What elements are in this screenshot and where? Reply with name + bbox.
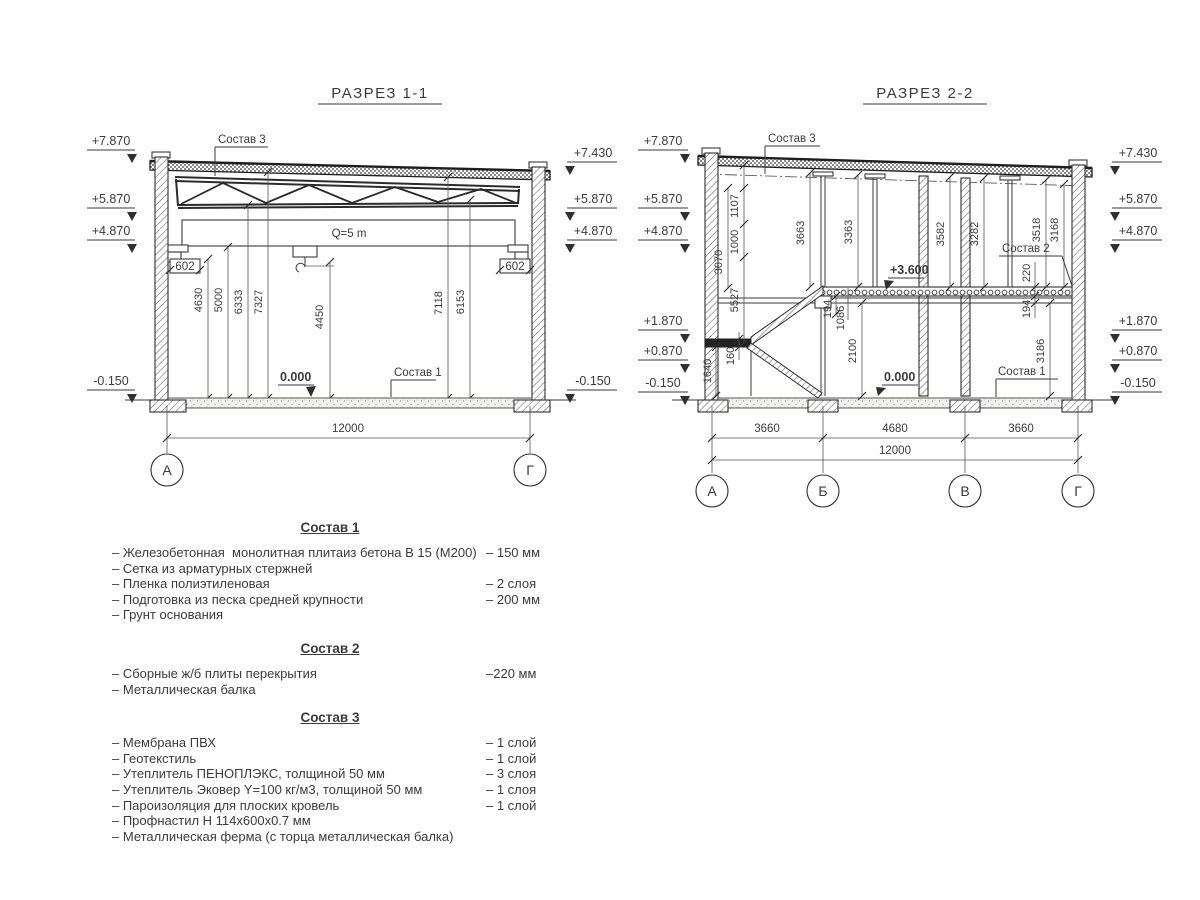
legend-item-value xyxy=(486,829,548,845)
level-mark: +4.870 xyxy=(1110,224,1162,253)
level-mark: -0.150 xyxy=(638,376,690,405)
svg-text:+3.600: +3.600 xyxy=(890,263,929,277)
section-1-title: РАЗРЕЗ 1-1 xyxy=(331,85,429,102)
svg-text:+7.870: +7.870 xyxy=(92,134,131,148)
level-0000-mark: 0.000 xyxy=(876,370,918,396)
svg-text:Б: Б xyxy=(818,483,827,499)
dim-3518: 3518 xyxy=(1031,176,1050,291)
level-mark: +7.870 xyxy=(87,134,137,163)
legend-row: – Пленка полиэтиленовая– 2 слоя xyxy=(112,576,548,592)
legend-item-label: – Сборные ж/б плиты перекрытия xyxy=(112,666,317,682)
dim-text: 602 xyxy=(505,261,524,273)
dim-602-right: 602 xyxy=(496,259,534,274)
sostav-2-title: Состав 2 xyxy=(112,641,548,656)
legend-item-label: – Железобетонная монолитная плитаиз бето… xyxy=(112,545,477,561)
dim-5000: 5000 xyxy=(213,243,232,402)
legend-row: – Сетка из арматурных стержней xyxy=(112,561,548,577)
legend-row: – Металлическая балка xyxy=(112,682,548,698)
svg-text:2100: 2100 xyxy=(847,339,859,363)
svg-text:+5.870: +5.870 xyxy=(1119,192,1158,206)
level-mark: +0.870 xyxy=(638,344,690,373)
crane-capacity-label: Q=5 m xyxy=(332,228,367,240)
svg-text:В: В xyxy=(960,483,969,499)
legend-item-value: – 1 слой xyxy=(486,735,548,751)
svg-text:-0.150: -0.150 xyxy=(1120,376,1155,390)
dim-text: 6153 xyxy=(455,290,467,314)
legend-row: – Утеплитель Эковер Y=100 кг/м3, толщино… xyxy=(112,782,548,798)
level-mark: +5.870 xyxy=(87,192,137,221)
section-2-2: РАЗРЕЗ 2-2 xyxy=(638,85,1162,507)
svg-text:3660: 3660 xyxy=(1008,423,1034,435)
dim-4450: 4450 xyxy=(314,258,334,402)
svg-text:+4.870: +4.870 xyxy=(1119,224,1158,238)
legend-item-label: – Пароизоляция для плоских кровель xyxy=(112,798,339,814)
legend-row: – Подготовка из песка средней крупности–… xyxy=(112,592,548,608)
legend-item-label: – Профнастил Н 114х600х0.7 мм xyxy=(112,813,311,829)
svg-text:12000: 12000 xyxy=(879,445,911,457)
level-mark: +5.870 xyxy=(1110,192,1162,221)
level-mark: -0.150 xyxy=(1110,376,1162,405)
legend-row: – Мембрана ПВХ– 1 слой xyxy=(112,735,548,751)
svg-text:3282: 3282 xyxy=(969,222,981,246)
svg-text:0.000: 0.000 xyxy=(884,370,915,384)
legend-item-label: – Грунт основания xyxy=(112,607,223,623)
dim-4630: 4630 xyxy=(193,255,212,402)
svg-text:Состав 1: Состав 1 xyxy=(998,366,1046,378)
level-mark: +7.870 xyxy=(638,134,690,163)
axis-bubble-a: А xyxy=(696,475,728,507)
svg-text:4680: 4680 xyxy=(882,423,908,435)
dim-3363: 3363 xyxy=(843,171,862,291)
level-mark: +1.870 xyxy=(1110,314,1162,343)
sostav-2-block: Состав 2 – Сборные ж/б плиты перекрытия–… xyxy=(112,641,548,697)
dim-text: 6333 xyxy=(233,290,245,314)
sostav2-callout: Состав 2 xyxy=(999,243,1072,286)
svg-text:-0.150: -0.150 xyxy=(575,374,610,388)
legend-row: – Грунт основания xyxy=(112,607,548,623)
legend-item-label: – Утеплитель Эковер Y=100 кг/м3, толщино… xyxy=(112,782,422,798)
svg-text:+4.870: +4.870 xyxy=(644,224,683,238)
dim-7327: 7327 xyxy=(253,168,272,402)
legend-item-value xyxy=(486,607,548,623)
dim-3663: 3663 xyxy=(795,169,814,291)
svg-text:Состав 2: Состав 2 xyxy=(1002,243,1050,255)
svg-text:+5.870: +5.870 xyxy=(644,192,683,206)
svg-text:+7.430: +7.430 xyxy=(574,146,613,160)
section-2-floor xyxy=(672,398,1118,412)
svg-text:3660: 3660 xyxy=(754,423,780,435)
svg-text:3070: 3070 xyxy=(713,250,725,274)
level-mark: +0.870 xyxy=(1110,344,1162,373)
svg-text:+5.870: +5.870 xyxy=(574,192,613,206)
dim-3582: 3582 xyxy=(935,173,954,291)
legend-item-value: – 1 слоя xyxy=(486,782,548,798)
dim-3168: 3168 xyxy=(1049,180,1068,291)
legend-item-value: –220 мм xyxy=(486,666,548,682)
level-mark: +4.870 xyxy=(565,224,617,253)
legend-row: – Профнастил Н 114х600х0.7 мм xyxy=(112,813,548,829)
svg-text:3582: 3582 xyxy=(935,222,947,246)
svg-text:3518: 3518 xyxy=(1031,218,1043,242)
legend-item-value: – 2 слоя xyxy=(486,576,548,592)
sections-canvas: РАЗРЕЗ 1-1 Q=5 m xyxy=(0,0,1200,520)
legend-item-label: – Подготовка из песка средней крупности xyxy=(112,592,363,608)
level-0000-mark: 0.000 xyxy=(278,370,316,397)
svg-text:+0.870: +0.870 xyxy=(1119,344,1158,358)
svg-text:+7.430: +7.430 xyxy=(1119,146,1158,160)
axis-bubble-g: Г xyxy=(514,454,546,486)
svg-text:-0.150: -0.150 xyxy=(93,374,128,388)
section-2-title: РАЗРЕЗ 2-2 xyxy=(876,85,974,102)
crane-corbels xyxy=(168,245,528,262)
svg-text:194: 194 xyxy=(1021,300,1033,318)
dim-text: 5000 xyxy=(213,288,225,312)
dim-text: 7327 xyxy=(253,290,265,314)
svg-text:1640: 1640 xyxy=(702,359,714,383)
legend-item-value: – 1 слой xyxy=(486,798,548,814)
dim-text: 12000 xyxy=(332,423,364,435)
sostav-3-title: Состав 3 xyxy=(112,710,548,725)
legend-item-label: – Мембрана ПВХ xyxy=(112,735,216,751)
level-text: 0.000 xyxy=(280,370,311,384)
legend-item-label: – Металлическая балка xyxy=(112,682,256,698)
svg-text:1107: 1107 xyxy=(729,194,741,218)
axis-bubble-b: Б xyxy=(807,475,839,507)
legend-row: – Пароизоляция для плоских кровель– 1 сл… xyxy=(112,798,548,814)
dim-text: 4630 xyxy=(193,288,205,312)
sostav1-callout: Состав 1 xyxy=(391,367,442,397)
legend-item-value xyxy=(486,682,548,698)
legend-item-value: – 200 мм xyxy=(486,592,548,608)
level-mark: +5.870 xyxy=(565,192,617,221)
dim-3282: 3282 xyxy=(969,174,988,291)
section-1-span-dim: 12000 xyxy=(163,406,534,453)
legend-item-label: – Геотекстиль xyxy=(112,751,196,767)
level-mark: +7.430 xyxy=(1110,146,1162,175)
sostav1-callout: Состав 1 xyxy=(996,366,1058,397)
legend-item-label: – Металлическая ферма (с торца металличе… xyxy=(112,829,453,845)
level-mark: +4.870 xyxy=(638,224,690,253)
svg-text:+0.870: +0.870 xyxy=(644,344,683,358)
axis-bubble-v: В xyxy=(949,475,981,507)
level-mark: +1.870 xyxy=(638,314,690,343)
crane-beam: Q=5 m xyxy=(182,220,515,272)
legend-row: – Геотекстиль– 1 слой xyxy=(112,751,548,767)
legend-item-value: – 150 мм xyxy=(486,545,548,561)
roof-truss xyxy=(175,177,520,208)
level-mark: -0.150 xyxy=(565,374,617,403)
dim-602-left: 602 xyxy=(166,259,204,274)
svg-text:1000: 1000 xyxy=(729,230,741,254)
legend-item-label: – Утеплитель ПЕНОПЛЭКС, толщиной 50 мм xyxy=(112,766,385,782)
level-mark: +7.430 xyxy=(565,146,617,175)
sostav-3-block: Состав 3 – Мембрана ПВХ– 1 слой – Геотек… xyxy=(112,710,548,844)
svg-text:220: 220 xyxy=(1021,264,1033,282)
svg-text:194: 194 xyxy=(822,300,834,318)
dim-text: 7118 xyxy=(433,291,445,315)
legend-item-value: – 1 слой xyxy=(486,751,548,767)
svg-text:+1.870: +1.870 xyxy=(644,314,683,328)
level-mark: +5.870 xyxy=(638,192,690,221)
svg-text:1086: 1086 xyxy=(835,306,847,330)
axis-bubble-g: Г xyxy=(1062,475,1094,507)
legend-item-label: – Сетка из арматурных стержней xyxy=(112,561,312,577)
level-mark: +4.870 xyxy=(87,224,137,253)
axis-letter: Г xyxy=(526,462,534,478)
section-1-floor xyxy=(125,398,576,412)
svg-text:5527: 5527 xyxy=(729,288,741,312)
svg-text:А: А xyxy=(707,483,717,499)
legend-row: – Металлическая ферма (с торца металличе… xyxy=(112,829,548,845)
callout-text: Состав 1 xyxy=(394,367,442,379)
legend-item-value xyxy=(486,561,548,577)
svg-text:3186: 3186 xyxy=(1035,339,1047,363)
legend-row: – Сборные ж/б плиты перекрытия–220 мм xyxy=(112,666,548,682)
interior-columns xyxy=(813,172,1020,396)
svg-text:3168: 3168 xyxy=(1049,218,1061,242)
drawing-sheet: РАЗРЕЗ 1-1 Q=5 m xyxy=(0,0,1200,900)
section-2-roof xyxy=(698,156,1092,186)
svg-text:3363: 3363 xyxy=(843,220,855,244)
sostav-1-block: Состав 1 – Железобетонная монолитная пли… xyxy=(112,520,548,623)
axis-bubble-a: А xyxy=(151,454,183,486)
sostav-1-title: Состав 1 xyxy=(112,520,548,535)
svg-text:160: 160 xyxy=(725,347,737,365)
legend-item-value xyxy=(486,813,548,829)
svg-text:+4.870: +4.870 xyxy=(574,224,613,238)
dim-text: 602 xyxy=(175,261,194,273)
level-mark: -0.150 xyxy=(87,374,137,403)
legend-item-label: – Пленка полиэтиленовая xyxy=(112,576,270,592)
legend-row: – Железобетонная монолитная плитаиз бето… xyxy=(112,545,548,561)
callout-text: Состав 3 xyxy=(218,134,266,146)
svg-text:Состав 3: Состав 3 xyxy=(768,133,816,145)
material-legend: Состав 1 – Железобетонная монолитная пли… xyxy=(112,520,548,844)
svg-text:Г: Г xyxy=(1074,483,1082,499)
legend-row: – Утеплитель ПЕНОПЛЭКС, толщиной 50 мм– … xyxy=(112,766,548,782)
svg-text:-0.150: -0.150 xyxy=(645,376,680,390)
section-1-1: РАЗРЕЗ 1-1 Q=5 m xyxy=(87,85,617,486)
legend-item-value: – 3 слоя xyxy=(486,766,548,782)
svg-text:+7.870: +7.870 xyxy=(644,134,683,148)
svg-text:+5.870: +5.870 xyxy=(92,192,131,206)
section-2-span-dims: 3660 4680 3660 12000 xyxy=(708,406,1082,473)
axis-letter: А xyxy=(162,462,172,478)
svg-text:+4.870: +4.870 xyxy=(92,224,131,238)
svg-text:+1.870: +1.870 xyxy=(1119,314,1158,328)
svg-text:3663: 3663 xyxy=(795,221,807,245)
dim-text: 4450 xyxy=(314,305,326,329)
